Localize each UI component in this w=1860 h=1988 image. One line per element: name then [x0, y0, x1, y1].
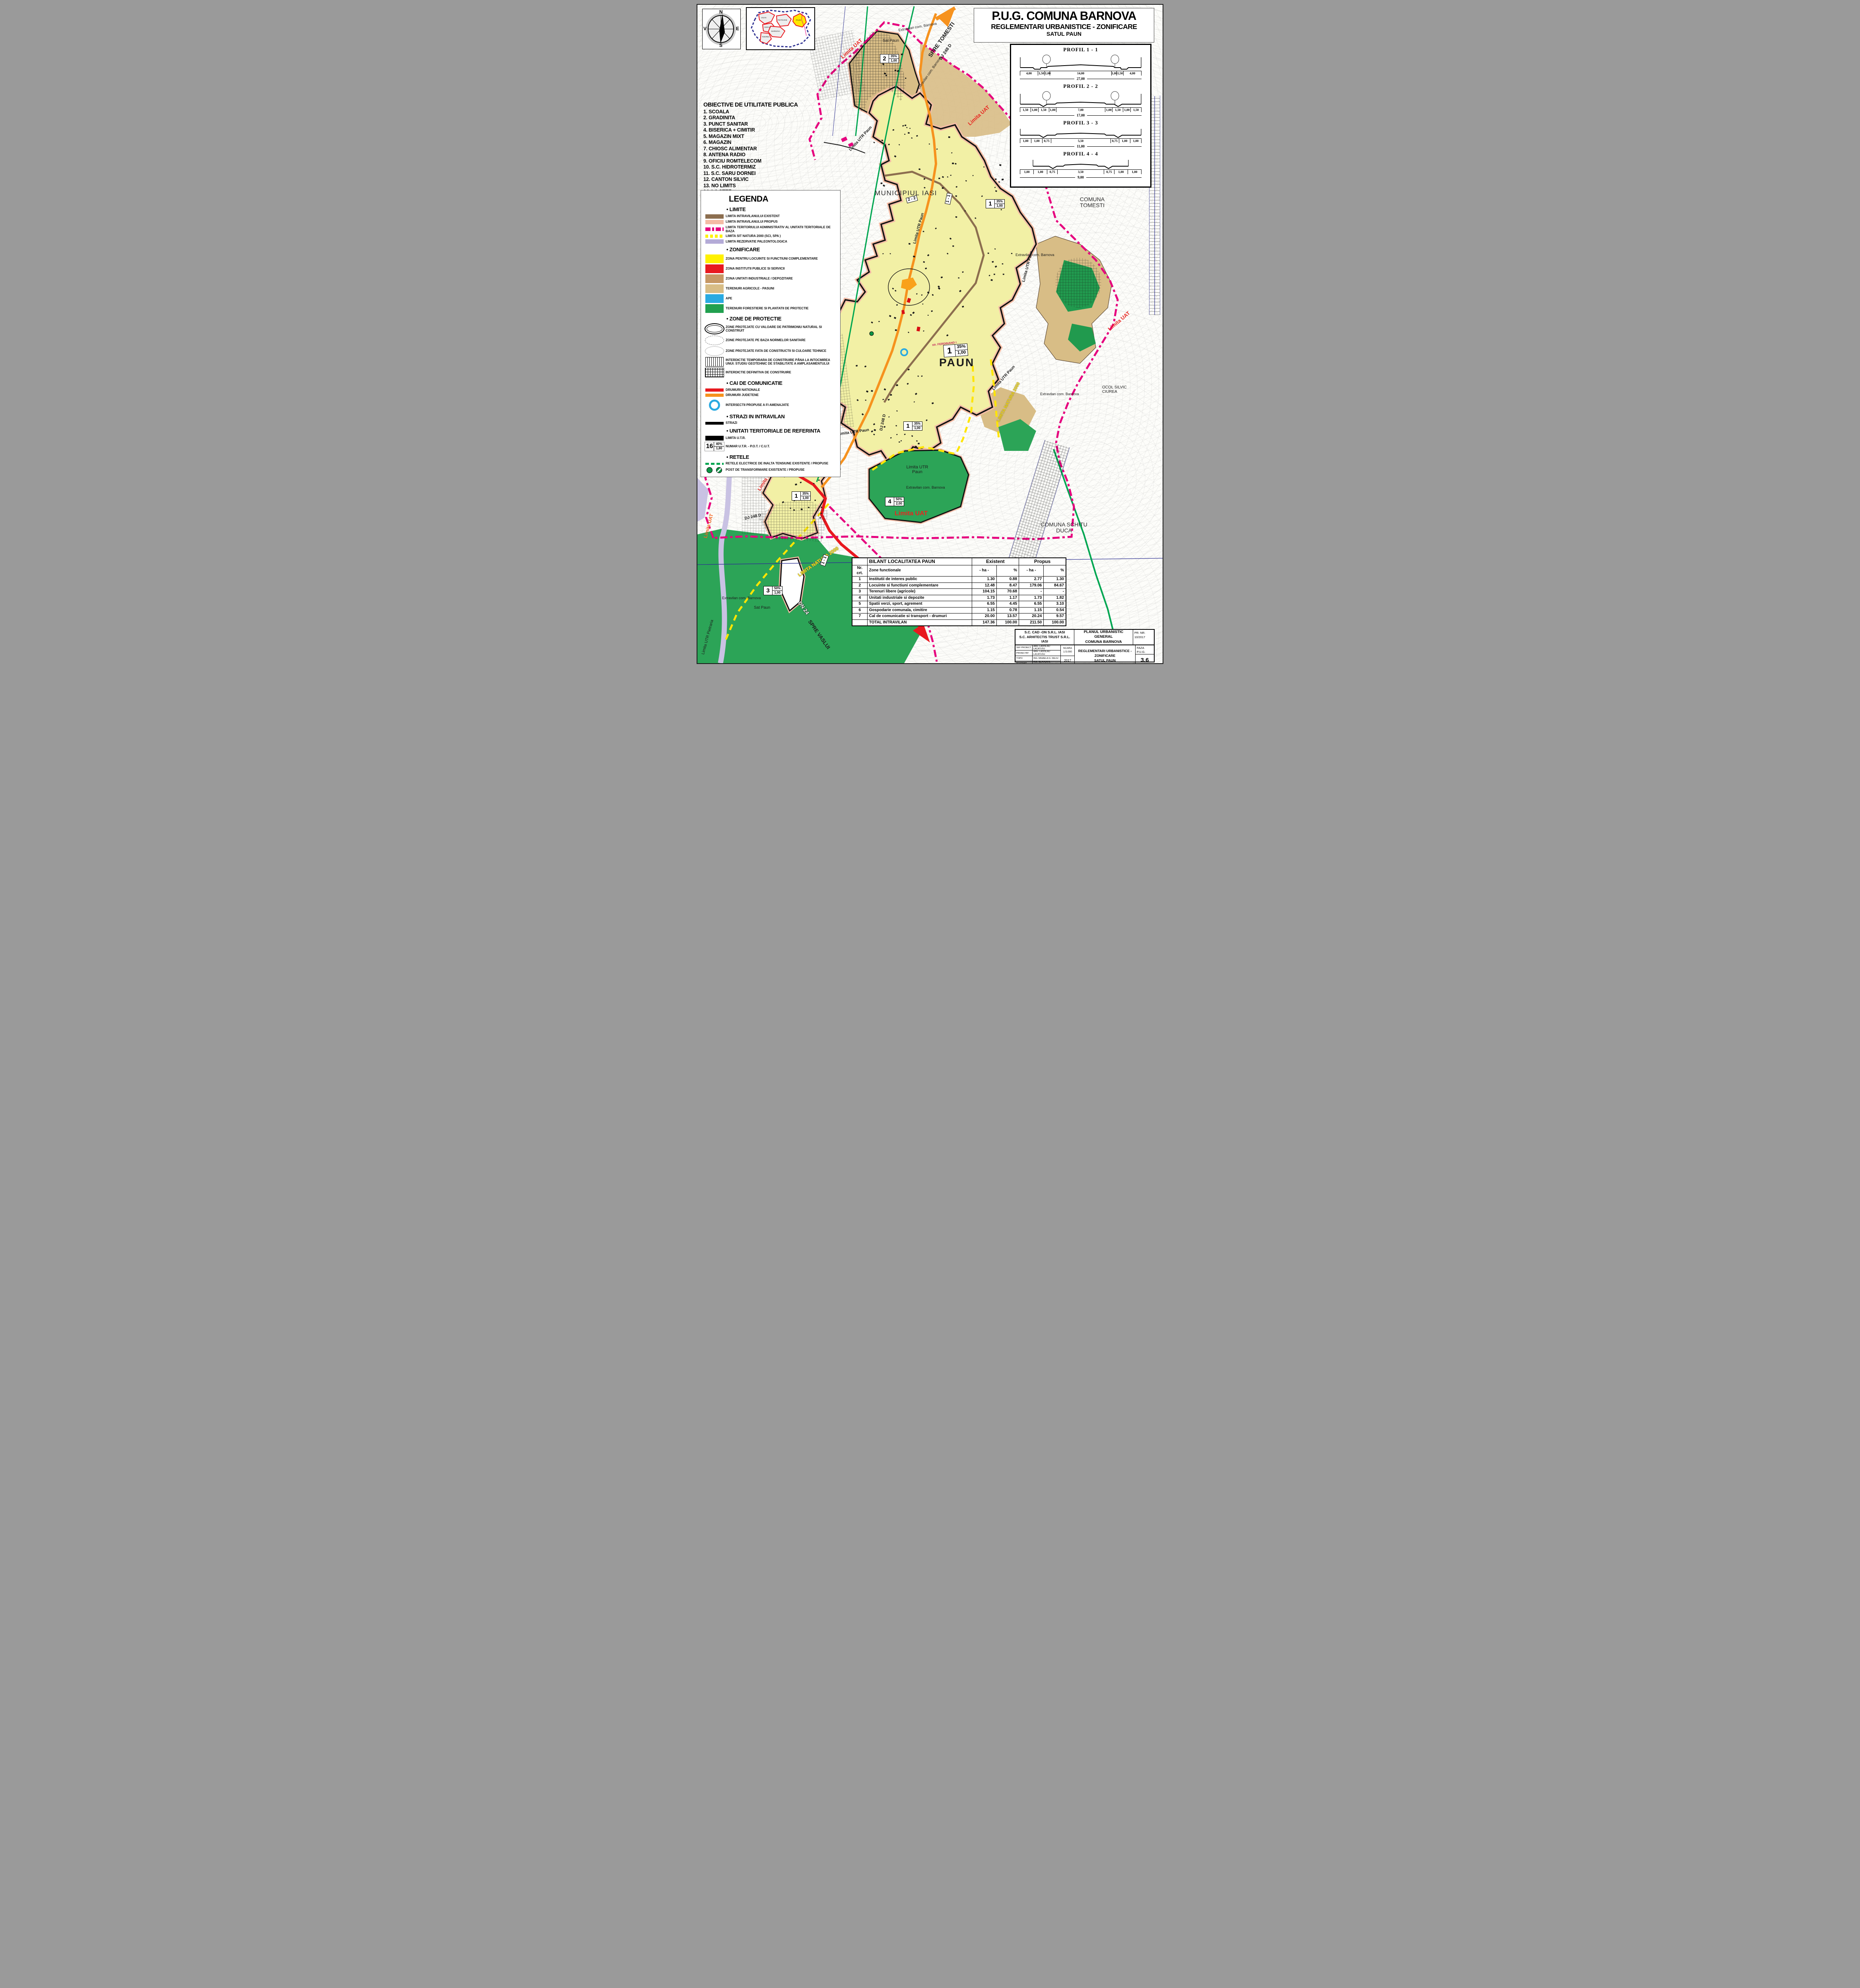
utr-number: 3 [764, 586, 773, 595]
profile-dim: 1,00 [1123, 108, 1130, 112]
profile-2-2: PROFIL 2 - 2 1,501,001,501,007,001,001,5… [1013, 83, 1148, 118]
col-pct-existent: % [996, 565, 1019, 577]
pr-label: PR. NR. [1134, 631, 1153, 635]
objective-item: 12. CANTON SILVIC [703, 177, 813, 183]
legend-swatch-icon [705, 235, 724, 238]
plan-title-box: P.U.G. COMUNA BARNOVA REGLEMENTARI URBAN… [974, 8, 1154, 43]
road-section-drawing [1015, 90, 1146, 107]
compass-n: N [719, 9, 723, 15]
legend-section-utr: • UNITATI TERITORIALE DE REFERINTA [726, 428, 838, 434]
objectives-heading: OBIECTIVE DE UTILITATE PUBLICA [703, 101, 813, 109]
utr-number: 2 [880, 54, 889, 63]
legend-item-label: TERENURI AGRICOLE - PASUNI [726, 287, 838, 291]
legend-heading: LEGENDA [729, 194, 838, 204]
legend-item-label: INTERDICTIE DEFINITIVA DE CONSTRUIRE [726, 371, 838, 375]
inset-map-drawing [747, 8, 813, 48]
legend-item: ZONE PROTEJATE FATA DE CONSTRUCTII SI CU… [703, 346, 838, 356]
compass-e: E [736, 26, 739, 31]
plansa-number: 3.6 [1136, 654, 1154, 664]
label-extravilan: Extravilan com. Barnova [1015, 253, 1054, 257]
profile-dim: 1,00 [1020, 170, 1033, 174]
profile-dim: 1,00 [1045, 71, 1050, 76]
table-row: 3 Terenuri libere (agricole) 104.15 70.6… [852, 589, 1066, 595]
profile-dim: 1,00 [1130, 139, 1142, 143]
label-ocol-silvic: OCOL SILVIC CIUREA [1102, 386, 1139, 394]
legend-item: TERENURI FORESTIERE SI PLANTATII DE PROT… [703, 304, 838, 313]
public-objectives-list: OBIECTIVE DE UTILITATE PUBLICA 1. SCOALA… [703, 101, 813, 195]
legend-item-label: ZONA UNITATI INDUSTRIALE / DEPOZITARE [726, 277, 838, 281]
objective-item: 2. GRADINITA [703, 115, 813, 121]
scara-value: 1:5.000 [1061, 650, 1074, 654]
col-ha-existent: - ha - [972, 565, 996, 577]
profile-dim: 1,50 [1038, 71, 1045, 76]
land-balance-table: BILANT LOCALITATEA PAUN Existent Propus … [852, 557, 1066, 626]
profile-4-4: PROFIL 4 - 4 1,001,000,753,500,751,001,0… [1013, 151, 1148, 180]
legend-item: ZONA PENTRU LOCUINTE SI FUNCTIUNI COMPLE… [703, 254, 838, 263]
legend-swatch-icon [705, 274, 724, 283]
company-1: S.C. CAD -ON S.R.L. IASI [1015, 630, 1074, 635]
inset-label-visan: VISAN [761, 17, 767, 19]
utr-pot: 35% [801, 492, 810, 496]
utr-cut: 1,00 [955, 350, 968, 356]
legend-swatch-icon [705, 467, 724, 473]
legend-swatch-icon [705, 227, 724, 231]
faza-label: FAZA [1137, 646, 1154, 650]
legend-swatch-icon [705, 357, 724, 367]
legend-swatch-icon [705, 304, 724, 313]
utr-number: 4 [885, 497, 894, 506]
table-row: 7 Cal de comunicatie si transport - drum… [852, 613, 1066, 620]
col-existent: Existent [972, 558, 1019, 565]
staff-row: PROIECTAT ARH. LADISLAU LACATUSU [1015, 650, 1060, 656]
profile-dim: 1,00 [1128, 170, 1142, 174]
profile-dim: 1,00 [1033, 170, 1047, 174]
legend-item-label: LIMITA U.T.R. [726, 436, 838, 440]
objective-item: 8. ANTENA RADIO [703, 152, 813, 158]
utr-marker-2: 2 35%1,00 [880, 54, 899, 63]
legend-item-label: DRUMURI NATIONALE [726, 388, 838, 392]
label-sat-paun-top: Sat Paun [883, 39, 899, 43]
legend-item-label: LIMITA INTRAVILANULUI EXISTENT [726, 214, 838, 218]
road-section-drawing [1015, 157, 1146, 169]
legend-swatch-icon [705, 323, 724, 334]
legend-swatch-icon [705, 254, 724, 263]
legend-item: APE [703, 294, 838, 303]
legend-item: TERENURI AGRICOLE - PASUNI [703, 284, 838, 293]
sheet-name-1: REGLEMENTARI URBANISTICE - ZONIFICARE [1076, 648, 1134, 658]
legend-item-label: POST DE TRANSFORMARE EXISTENTE / PROPUSE [726, 468, 838, 472]
street-profiles-box: PROFIL 1 - 1 4,001,501,0014,001,001,504,… [1010, 44, 1151, 188]
legend-item-label: INTERDICTIE TEMPORARA DE CONSTRUIRE PÂNA… [726, 358, 838, 366]
utr-marker-1: 1 35%1,00 [986, 199, 1005, 208]
utr-cut: 1,00 [995, 204, 1004, 208]
profile-dim: 1,00 [1020, 139, 1031, 143]
profile-title: PROFIL 4 - 4 [1013, 151, 1148, 157]
legend-item-label: TERENURI FORESTIERE SI PLANTATII DE PROT… [726, 307, 838, 311]
utr-pot: 50% [894, 497, 904, 502]
profile-total: 17,00 [1020, 113, 1142, 118]
faza-value: P.U.G. [1137, 650, 1154, 654]
col-propus: Propus [1019, 558, 1066, 565]
legend-section-zonificare: • ZONIFICARE [726, 247, 838, 253]
legend-item-label: LIMITA REZERVATIE PALEONTOLOGICA [726, 240, 838, 244]
objective-item: 3. PUNCT SANITAR [703, 121, 813, 128]
label-municipiul-iasi: MUNICIPIUL IASI [875, 190, 937, 197]
objective-item: 5. MAGAZIN MIXT [703, 134, 813, 140]
col-zone: Zone functionale [867, 565, 972, 577]
profile-dim: 1,50 [1130, 108, 1142, 112]
legend-item: LIMITA REZERVATIE PALEONTOLOGICA [703, 239, 838, 244]
legend-section-limite: • LIMITE [726, 206, 838, 213]
profile-dim: 4,00 [1020, 71, 1038, 76]
drawing-title-block: S.C. CAD -ON S.R.L. IASI S.C. ARHITECTIS… [1015, 629, 1155, 662]
legend-swatch-icon [705, 336, 724, 345]
legend-item: INTERDICTIE TEMPORARA DE CONSTRUIRE PÂNA… [703, 357, 838, 367]
legend-item: DRUMURI NATIONALE [703, 388, 838, 392]
legend-swatch-icon [705, 368, 724, 377]
legend-item: LIMITA U.T.R. [703, 436, 838, 441]
profile-dim: 4,00 [1123, 71, 1142, 76]
inset-label-cercu: CERCU [764, 26, 771, 28]
utr-sample-number: 16 [705, 442, 714, 451]
plan-sheet: MUNICIPIUL IASI COMUNA TOMESTI COMUNA SC… [697, 4, 1163, 664]
plan-subtitle: REGLEMENTARI URBANISTICE - ZONIFICARE [974, 23, 1154, 31]
profile-dim: 1,50 [1116, 71, 1123, 76]
inset-label-paun: PAUN [796, 19, 801, 21]
col-nr: Nr. crt. [852, 565, 867, 577]
profile-dim: 1,50 [1020, 108, 1031, 112]
inset-label-barnova: BARNOVA [771, 30, 780, 32]
legend-swatch-icon [705, 346, 724, 356]
label-extravilan: Extravilan com. Barnova [1040, 392, 1079, 396]
profile-dim: 14,00 [1050, 71, 1111, 76]
legend-item-label: STRAZI [726, 421, 838, 425]
objective-item: 11. S.C. SARU DORNEI [703, 171, 813, 177]
plan-title: P.U.G. COMUNA BARNOVA [978, 10, 1150, 23]
profile-dim: 0,75 [1104, 170, 1114, 174]
legend-section-retele: • RETELE [726, 454, 838, 460]
utr-cut: 1,00 [913, 426, 922, 430]
profile-total: 9,00 [1020, 175, 1142, 180]
utr-pot: 35% [995, 200, 1004, 204]
legend-item-label: ZONE PROTEJATE FATA DE CONSTRUCTII SI CU… [726, 349, 838, 353]
profile-3-3: PROFIL 3 - 3 1,001,000,755,500,751,001,0… [1013, 120, 1148, 149]
profile-dim: 1,50 [1038, 108, 1049, 112]
utr-pot: 50% [773, 586, 782, 591]
table-title: BILANT LOCALITATEA PAUN [867, 558, 972, 565]
utr-cut: 1,00 [801, 496, 810, 500]
company-2: S.C. ARHITECTIS TRUST S.R.L. IASI [1015, 635, 1074, 644]
utr-number: 1 [792, 492, 801, 500]
legend-swatch-icon [705, 214, 724, 219]
legend-swatch-icon [705, 436, 724, 441]
profile-dim: 1,00 [1049, 108, 1056, 112]
year: 2017 [1061, 656, 1074, 664]
profile-dim: 5,50 [1051, 139, 1111, 143]
profile-dim: 1,00 [1114, 170, 1128, 174]
scara-label: SCARA [1061, 647, 1074, 650]
legend-swatch-icon [705, 388, 724, 392]
legend-swatch-icon [705, 220, 724, 224]
profile-dim: 1,00 [1111, 71, 1116, 76]
label-comuna-tomesti: COMUNA TOMESTI [1072, 196, 1112, 208]
inset-commune-map: VISAN CERCU PIETRARIE BARNOVA TODIREL PA… [746, 7, 815, 50]
profile-total: 27,00 [1020, 76, 1142, 81]
objective-item: 9. OFICIU ROMTELECOM [703, 158, 813, 165]
legend-swatch-icon [705, 239, 724, 244]
col-pct-propus: % [1044, 565, 1066, 577]
profile-dim: 3,50 [1057, 170, 1104, 174]
compass-s: S [719, 43, 722, 48]
profile-dim: 1,00 [1031, 139, 1042, 143]
legend-item-label: INTERSECTII PROPUSE A FI AMENAJATE [726, 403, 838, 407]
legend-item: STRAZI [703, 421, 838, 425]
road-section-drawing [1015, 126, 1146, 138]
legend-item-label: LIMITA INTRAVILANULUI PROPUS [726, 220, 838, 224]
utr-pot: 35% [889, 54, 899, 59]
profile-1-1: PROFIL 1 - 1 4,001,501,0014,001,001,504,… [1013, 47, 1148, 81]
utr-cut: 2,00 [894, 502, 904, 506]
plan-name: PLANUL URBANISTIC GENERAL [1074, 630, 1133, 640]
utr-sample-cut: 1,80 [714, 447, 724, 450]
utr-marker-1: 1 35%1,00 [943, 344, 968, 357]
plan-village: SATUL PAUN [974, 31, 1154, 38]
objective-item: 13. NO LIMITS [703, 183, 813, 189]
legend-item: RETELE ELECTRICE DE INALTA TENSIUNE EXIS… [703, 462, 838, 466]
legend-item: LIMITA INTRAVILANULUI PROPUS [703, 220, 838, 224]
legend-item-label: DRUMURI JUDETENE [726, 393, 838, 397]
col-ha-propus: - ha - [1019, 565, 1044, 577]
legend-swatch-icon [705, 394, 724, 397]
objective-item: 10. S.C. HIDROTERMIZ [703, 164, 813, 171]
legend-item: LIMITA TERITORIULUI ADMINISTRATIV AL UNI… [703, 225, 838, 233]
road-section-drawing [1015, 53, 1146, 71]
table-row: 5 Spatii verzi, sport, agrement 6.55 4.4… [852, 601, 1066, 608]
legend-item-label: NUMAR U.T.R. - P.O.T. / C.U.T. [726, 445, 838, 448]
inset-label-pietrarie: PIETRARIE [778, 19, 787, 21]
utr-sample-box: 16 40%1,80 [705, 442, 724, 451]
legend-item: INTERSECTII PROPUSE A FI AMENAJATE [703, 400, 838, 411]
utr-number: 1 [944, 345, 956, 357]
utr-cut: 1,00 [889, 59, 899, 63]
legend-item: ZONE PROTEJATE CU VALOARE DE PATRIMONIU … [703, 323, 838, 334]
legend-item: ZONA INSTITUTII PUBLICE SI SERVICII [703, 264, 838, 273]
legend-section-cai: • CAI DE COMUNICATIE [726, 380, 838, 386]
legend-item: ZONE PROTEJATE PE BAZA NORMELOR SANITARE [703, 336, 838, 345]
legend-section-protectie: • ZONE DE PROTECTIE [726, 316, 838, 322]
legend-item-label: RETELE ELECTRICE DE INALTA TENSIUNE EXIS… [726, 462, 838, 466]
profile-title: PROFIL 1 - 1 [1013, 47, 1148, 53]
label-extravilan: Extravilan com. Barnova [906, 486, 945, 489]
legend-swatch-icon [705, 294, 724, 303]
legend-item-label: APE [726, 297, 838, 301]
objective-item: 6. MAGAZIN [703, 140, 813, 146]
label-comuna-schitu-duca: COMUNA SCHITU DUCA [1040, 522, 1088, 533]
objective-item: 7. CHIOSC ALIMENTAR [703, 146, 813, 152]
profile-title: PROFIL 2 - 2 [1013, 83, 1148, 90]
profile-dim: 1,00 [1031, 108, 1038, 112]
label-paun: PAUN [939, 357, 975, 368]
legend-item: DRUMURI JUDETENE [703, 393, 838, 397]
legend-item-label: ZONE PROTEJATE PE BAZA NORMELOR SANITARE [726, 338, 838, 342]
legend-swatch-icon [709, 400, 720, 411]
compass-rose: N E S V [702, 9, 741, 49]
legend-item: POST DE TRANSFORMARE EXISTENTE / PROPUSE [703, 467, 838, 473]
utr-marker-4: 4 50%2,00 [885, 497, 904, 506]
utr-marker-3: 3 50%1,00 [763, 586, 782, 595]
legend-swatch-icon [705, 284, 724, 293]
utr-pot: 35% [913, 422, 922, 426]
table-total-row: TOTAL INTRAVILAN 147.36 100.00 211.50 10… [852, 619, 1066, 626]
label-extravilan: Extravilan com. Barnova [722, 596, 761, 600]
profile-total: 11,00 [1020, 144, 1142, 149]
table-row: 2 Locuinte si functiuni complementare 12… [852, 582, 1066, 589]
staff-row: TOPO ING. MIHAELA G. DELIU [1015, 656, 1060, 661]
legend-section-strazi: • STRAZI IN INTRAVILAN [726, 414, 838, 420]
inset-label-todirel: TODIREL [762, 36, 769, 38]
table-row: 4 Unitati industriale si depozite 1.73 1… [852, 595, 1066, 601]
profile-dim: 0,75 [1042, 139, 1050, 143]
legend-item: LIMITA INTRAVILANULUI EXISTENT [703, 214, 838, 219]
legend-item: ZONA UNITATI INDUSTRIALE / DEPOZITARE [703, 274, 838, 283]
legend-item-label: ZONE PROTEJATE CU VALOARE DE PATRIMONIU … [726, 325, 838, 333]
profile-dim: 7,00 [1056, 108, 1105, 112]
label-limita-uat: Limita UAT [895, 511, 928, 517]
utr-marker-1: 1 35%1,00 [903, 421, 922, 431]
legend-box: LEGENDA • LIMITE LIMITA INTRAVILANULUI E… [701, 190, 841, 477]
sheet-name-2: SATUL PAUN [1076, 658, 1134, 663]
utr-cut: 1,00 [773, 591, 782, 595]
profile-dim: 1,00 [1105, 108, 1112, 112]
compass-v: V [703, 26, 707, 31]
utr-marker-1: 1 35%1,00 [792, 491, 811, 501]
label-sat-paun-bottom: Sat Paun [754, 606, 770, 610]
legend-item-label: ZONA INSTITUTII PUBLICE SI SERVICII [726, 267, 838, 271]
profile-dim: 0,75 [1111, 139, 1119, 143]
legend-item-utr-sample: 16 40%1,80 NUMAR U.T.R. - P.O.T. / C.U.T… [703, 442, 838, 451]
table-row: 1 Institutii de interes public 1.30 0.88… [852, 577, 1066, 583]
staff-row: DESENAT ING. CLAVIUS B. PARFENE [1015, 661, 1060, 664]
staff-row: SEF PROIECT ARH. LADISLAU LACATUSU [1015, 645, 1060, 650]
utr-sample-pot: 40% [714, 442, 724, 447]
legend-item: LIMITA SIT NATURA 2000 (SCI, SPA ) [703, 234, 838, 238]
legend-item-label: LIMITA SIT NATURA 2000 (SCI, SPA ) [726, 234, 838, 238]
pr-value: 10/2017 [1134, 635, 1153, 640]
legend-swatch-icon [705, 422, 724, 425]
profile-dim: 0,75 [1047, 170, 1057, 174]
legend-swatch-icon [705, 264, 724, 273]
objective-item: 1. SCOALA [703, 109, 813, 115]
label-limita-utr-paun: Limita UTR Paun [903, 465, 932, 474]
table-row: 6 Gospodarie comunala, cimitire 1.15 0.7… [852, 607, 1066, 613]
profile-title: PROFIL 3 - 3 [1013, 120, 1148, 126]
legend-swatch-icon [705, 463, 724, 465]
utr-number: 1 [986, 200, 995, 208]
objective-item: 4. BISERICA + CIMITIR [703, 127, 813, 134]
utr-number: 1 [904, 422, 913, 430]
profile-dim: 1,50 [1112, 108, 1123, 112]
legend-item: INTERDICTIE DEFINITIVA DE CONSTRUIRE [703, 368, 838, 377]
plan-commune: COMUNA BARNOVA [1074, 640, 1133, 645]
profile-dim: 1,00 [1119, 139, 1130, 143]
legend-item-label: LIMITA TERITORIULUI ADMINISTRATIV AL UNI… [726, 225, 838, 233]
legend-item-label: ZONA PENTRU LOCUINTE SI FUNCTIUNI COMPLE… [726, 257, 838, 261]
